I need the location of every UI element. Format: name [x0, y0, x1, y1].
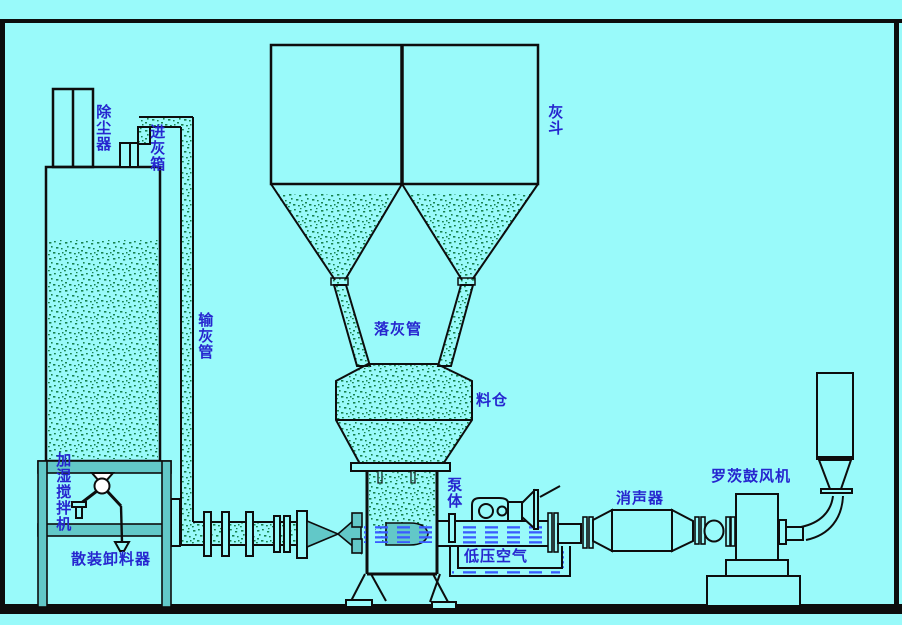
material-silo: [336, 364, 472, 464]
ash-hopper: [271, 45, 538, 285]
label-roots-blower: 罗茨鼓风机: [711, 468, 791, 484]
intake-filter: [816, 373, 854, 493]
ash-inlet-box: [120, 127, 150, 167]
valve-gauge-assembly: [472, 486, 560, 529]
label-pump-body: 泵体: [446, 477, 462, 509]
roots-blower: [707, 494, 843, 606]
pump-nozzle: [364, 523, 438, 545]
diagram-canvas: 除尘器 进灰箱 灰斗 输灰管 落灰管 料仓 泵体 低压空气 消声器 罗茨鼓风机 …: [0, 0, 902, 625]
label-material-silo: 料仓: [476, 392, 508, 408]
storage-tank: [46, 167, 160, 461]
label-ash-drop-pipe: 落灰管: [374, 321, 422, 337]
label-ash-conveying-pipe: 输灰管: [197, 312, 213, 360]
label-low-pressure-air: 低压空气: [464, 548, 528, 564]
silencer: [593, 510, 735, 551]
feed-pipe-venturi: [171, 499, 362, 558]
dust-collector: [53, 89, 93, 167]
label-silencer: 消声器: [616, 490, 664, 506]
label-bulk-unloader: 散装卸料器: [71, 551, 151, 567]
label-ash-hopper: 灰斗: [547, 104, 563, 136]
humidifying-mixer: [72, 473, 129, 551]
schematic-drawing: [0, 0, 902, 625]
label-humidifying-mixer: 加湿搅拌机: [55, 452, 71, 532]
label-ash-inlet-box: 进灰箱: [149, 124, 165, 172]
label-dust-collector: 除尘器: [95, 104, 111, 152]
